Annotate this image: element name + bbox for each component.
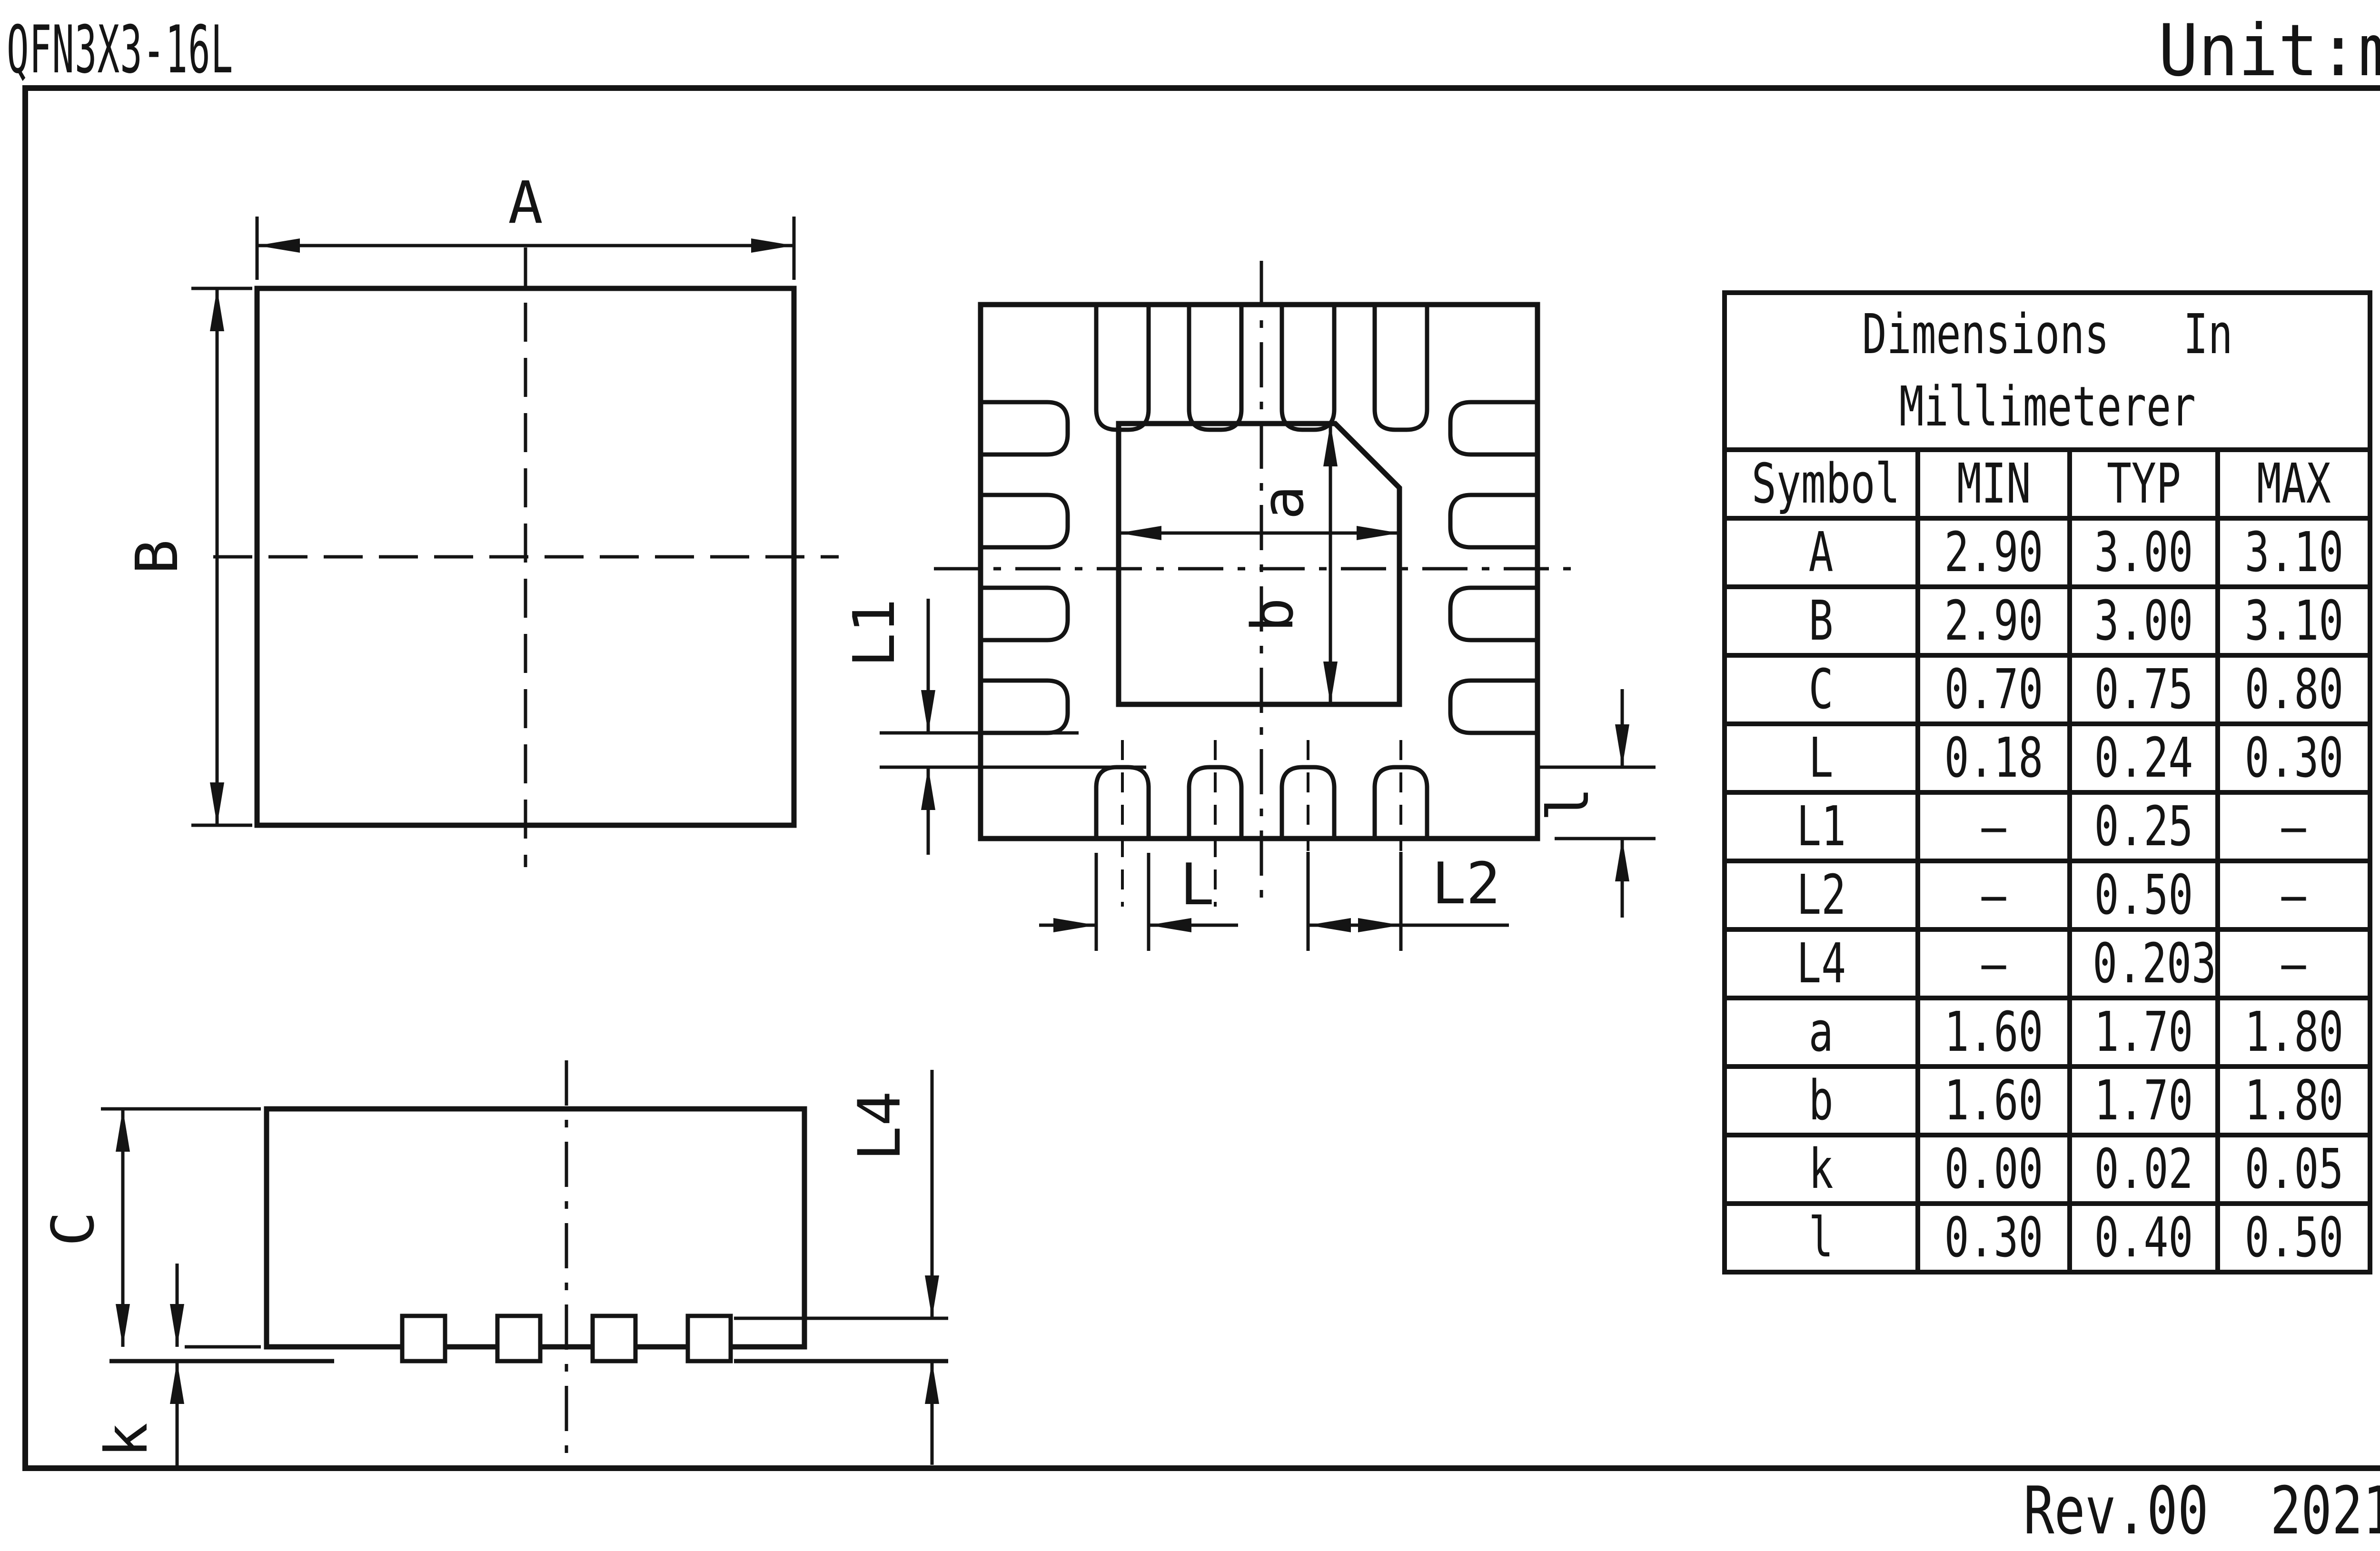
table-title-row: Dimensions In Millimeterer bbox=[1725, 293, 2370, 450]
table-row: A 2.90 3.00 3.10 bbox=[1725, 518, 2370, 587]
col-header-symbol: Symbol bbox=[1752, 452, 1900, 516]
dim-label-B: B bbox=[123, 539, 191, 574]
table-title-line2: Millimeterer bbox=[1899, 371, 2195, 444]
table-row: B 2.90 3.00 3.10 bbox=[1725, 587, 2370, 655]
dimensions-table: Dimensions In Millimeterer Symbol MIN TY… bbox=[1722, 290, 2372, 1274]
center-pad bbox=[1119, 424, 1399, 704]
col-header-min: MIN bbox=[1957, 452, 2031, 516]
dim-label-A: A bbox=[508, 169, 543, 237]
table-row: L1 – 0.25 – bbox=[1725, 792, 2370, 861]
col-header-typ: TYP bbox=[2107, 452, 2181, 516]
side-view bbox=[101, 1060, 948, 1466]
table-row: a 1.60 1.70 1.80 bbox=[1725, 998, 2370, 1067]
dim-label-l: l bbox=[1536, 787, 1602, 821]
table-title-line1: Dimensions In bbox=[1862, 299, 2233, 371]
bottom-view-package-outline bbox=[981, 305, 1537, 839]
table-row: L4 – 0.203 – bbox=[1725, 929, 2370, 998]
table-row: C 0.70 0.75 0.80 bbox=[1725, 655, 2370, 724]
table-row: L2 – 0.50 – bbox=[1725, 861, 2370, 929]
datasheet-page: QFN3X3-16L Unit:mm Rev.00 202107 A B bbox=[0, 0, 2380, 1551]
table-row: l 0.30 0.40 0.50 bbox=[1725, 1204, 2370, 1272]
side-view-body bbox=[267, 1109, 804, 1347]
dim-label-k: k bbox=[93, 1423, 160, 1457]
dim-label-a: a bbox=[1250, 485, 1317, 520]
table-row: b 1.60 1.70 1.80 bbox=[1725, 1067, 2370, 1135]
col-header-max: MAX bbox=[2257, 452, 2331, 516]
table-row: k 0.00 0.02 0.05 bbox=[1725, 1135, 2370, 1204]
dim-label-L1: L1 bbox=[842, 599, 908, 668]
dim-label-C: C bbox=[40, 1211, 107, 1246]
top-view bbox=[191, 217, 839, 867]
dim-label-L2: L2 bbox=[1432, 851, 1501, 917]
dim-label-L4: L4 bbox=[846, 1091, 913, 1161]
dim-label-L: L bbox=[1180, 852, 1214, 918]
dim-label-b: b bbox=[1240, 598, 1306, 632]
table-header-row: Symbol MIN TYP MAX bbox=[1725, 450, 2370, 518]
table-row: L 0.18 0.24 0.30 bbox=[1725, 724, 2370, 792]
